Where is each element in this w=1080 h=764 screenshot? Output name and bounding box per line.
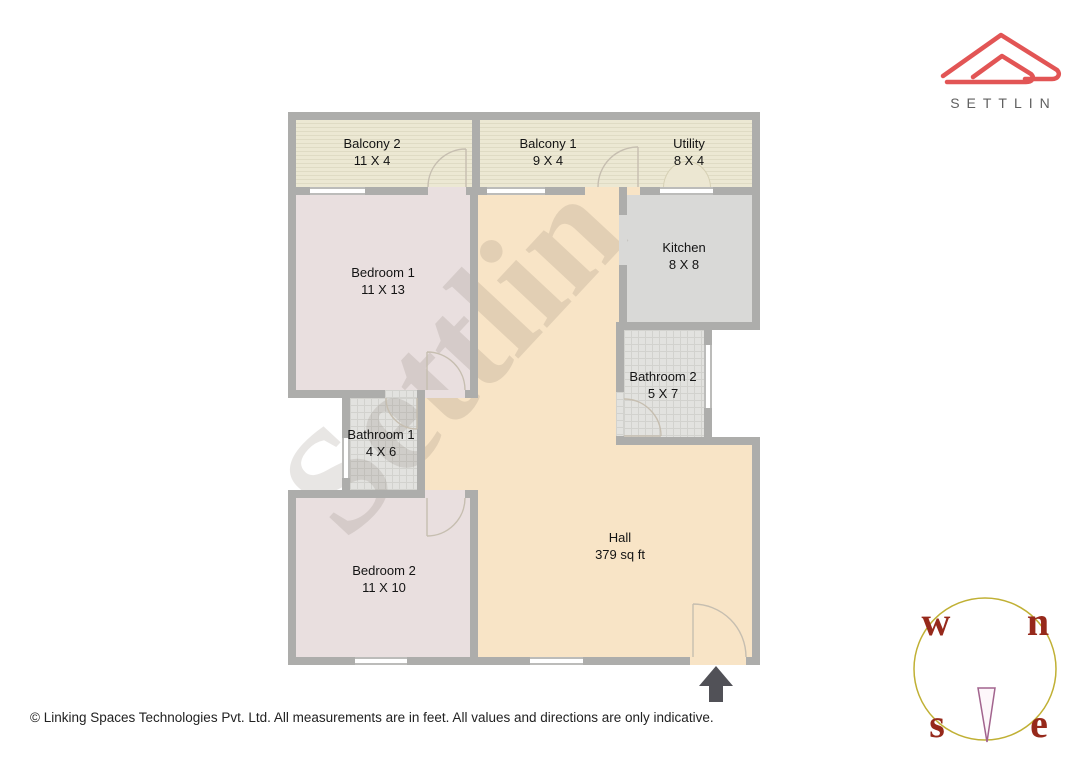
wall-segment [288, 390, 385, 398]
floorplan-page: Settlin [0, 0, 1080, 764]
door-opening [425, 490, 465, 498]
room-name: Balcony 2 [343, 136, 400, 153]
wall-segment [583, 657, 690, 665]
room-label-balcony2: Balcony 2 11 X 4 [343, 136, 400, 170]
room-dims: 379 sq ft [595, 547, 645, 564]
wall-segment [616, 322, 760, 330]
door-opening [428, 187, 466, 195]
wall-segment [288, 657, 355, 665]
wall-segment [752, 112, 760, 330]
copyright-text: © Linking Spaces Technologies Pvt. Ltd. … [30, 710, 714, 725]
wall-segment [288, 112, 296, 398]
compass-east: e [1030, 701, 1048, 746]
wall-segment [288, 112, 760, 120]
door-opening [619, 215, 627, 265]
wall-segment [616, 330, 624, 392]
window [355, 657, 407, 665]
room-label-hall: Hall 379 sq ft [595, 530, 645, 564]
entrance-door-opening [690, 657, 746, 665]
window [487, 187, 545, 195]
room-name: Utility [673, 136, 705, 153]
door-opening [585, 187, 640, 195]
room-dims: 9 X 4 [519, 153, 576, 170]
brand-name: SETTLIN [933, 95, 1067, 111]
room-dims: 11 X 10 [352, 580, 416, 597]
compass-needle [978, 688, 995, 742]
door-opening [616, 392, 624, 436]
wall-segment [470, 187, 478, 398]
room-dims: 11 X 13 [351, 282, 415, 299]
room-label-bedroom2: Bedroom 2 11 X 10 [352, 563, 416, 597]
room-name: Bathroom 1 [347, 427, 414, 444]
room-name: Balcony 1 [519, 136, 576, 153]
room-name: Bedroom 1 [351, 265, 415, 282]
wall-segment [545, 187, 585, 195]
exterior-notch [712, 330, 760, 437]
wall-segment [713, 187, 760, 195]
settlin-logo: SETTLIN [933, 26, 1067, 111]
wall-segment [752, 438, 760, 665]
wall-segment [407, 657, 530, 665]
wall-segment [746, 657, 760, 665]
wall-segment [619, 187, 627, 215]
room-name: Bathroom 2 [629, 369, 696, 386]
wall-segment [640, 187, 660, 195]
window [530, 657, 583, 665]
wall-segment [470, 490, 478, 665]
room-label-bathroom2: Bathroom 2 5 X 7 [629, 369, 696, 403]
room-name: Kitchen [662, 240, 705, 257]
room-name: Hall [595, 530, 645, 547]
room-label-utility: Utility 8 X 4 [673, 136, 705, 170]
wall-segment [288, 490, 296, 665]
room-label-kitchen: Kitchen 8 X 8 [662, 240, 705, 274]
wall-segment [417, 390, 425, 498]
room-label-bathroom1: Bathroom 1 4 X 6 [347, 427, 414, 461]
room-label-balcony1: Balcony 1 9 X 4 [519, 136, 576, 170]
wall-segment [288, 490, 425, 498]
wall-segment [616, 437, 760, 445]
entrance-arrow-icon [699, 666, 733, 702]
room-dims: 8 X 4 [673, 153, 705, 170]
room-dims: 8 X 8 [662, 257, 705, 274]
room-label-bedroom1: Bedroom 1 11 X 13 [351, 265, 415, 299]
wall-segment [365, 187, 428, 195]
compass-west: w [922, 599, 951, 644]
wall-segment [619, 265, 627, 330]
door-opening [425, 390, 465, 398]
room-hall-passage [425, 398, 478, 490]
wall-segment [465, 390, 478, 398]
wall-segment [472, 112, 480, 195]
door-opening [385, 390, 418, 398]
window [310, 187, 365, 195]
wall-segment [704, 330, 712, 345]
wall-segment [288, 187, 310, 195]
room-dims: 4 X 6 [347, 444, 414, 461]
room-name: Bedroom 2 [352, 563, 416, 580]
compass-north: n [1027, 599, 1049, 644]
compass-icon: w n s e [908, 592, 1068, 752]
settlin-house-icon [933, 26, 1067, 88]
room-dims: 11 X 4 [343, 153, 400, 170]
compass-south: s [929, 701, 945, 746]
room-dims: 5 X 7 [629, 386, 696, 403]
window [660, 187, 713, 195]
window [704, 345, 712, 408]
